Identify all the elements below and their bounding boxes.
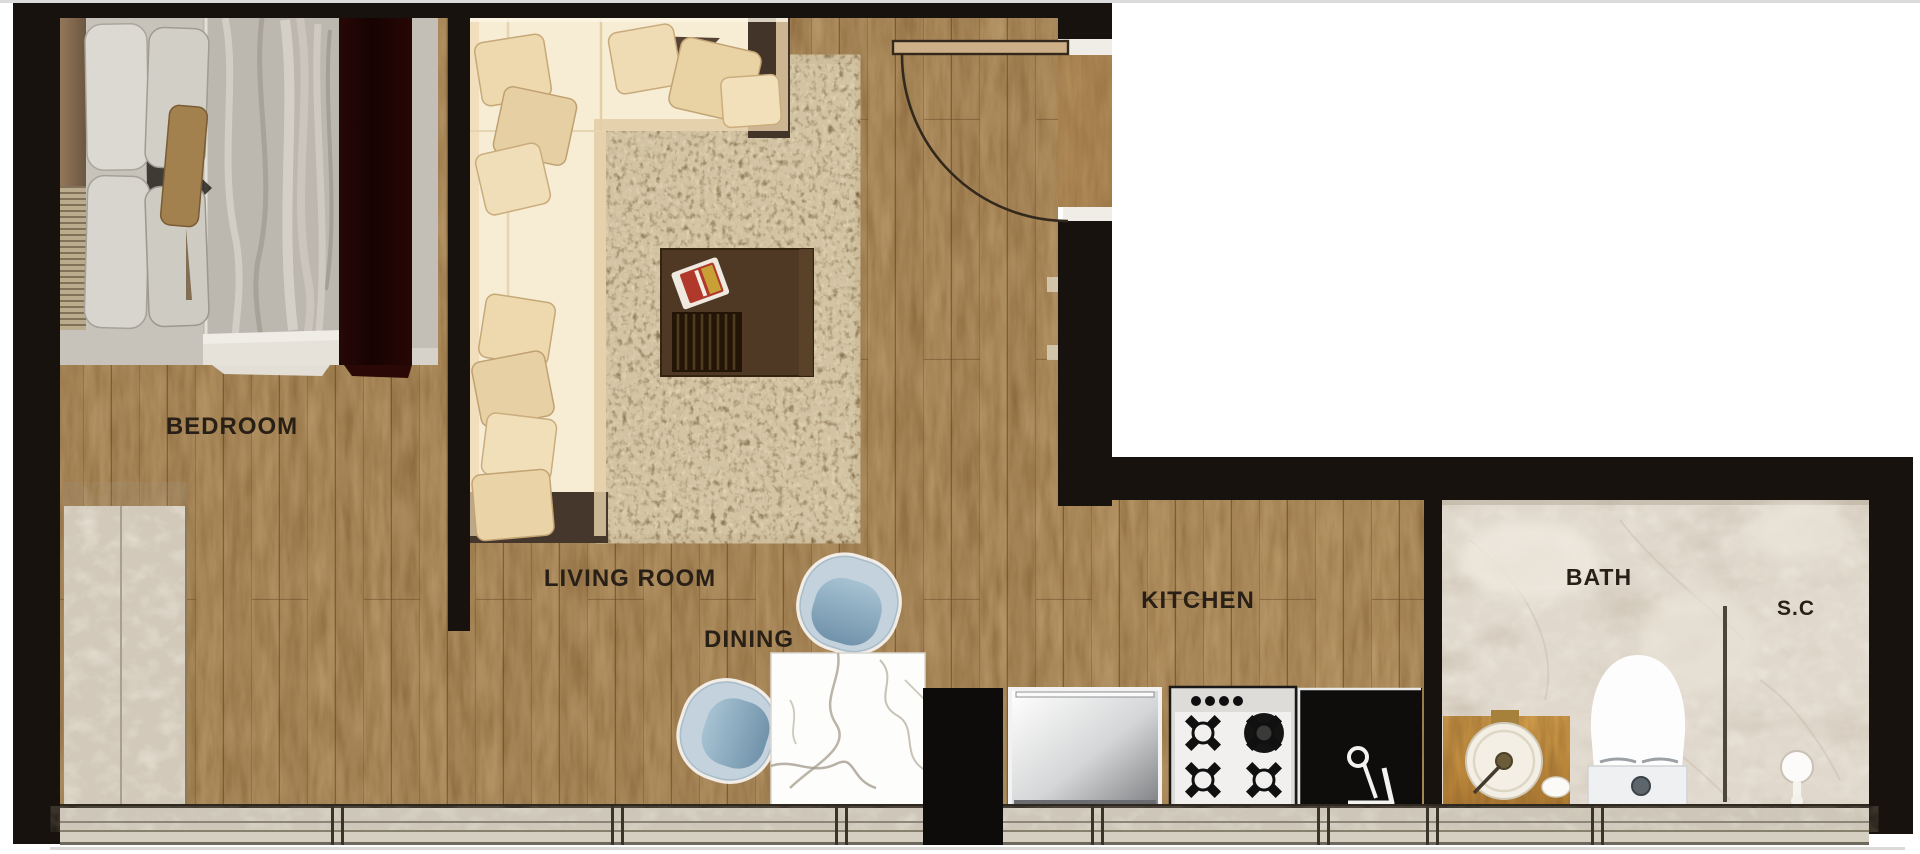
svg-text:BATH: BATH [1566,564,1632,590]
svg-text:S.C: S.C [1777,597,1815,620]
svg-text:DINING: DINING [704,626,794,653]
svg-text:BEDROOM: BEDROOM [166,413,298,440]
svg-text:LIVING ROOM: LIVING ROOM [544,565,716,592]
svg-text:KITCHEN: KITCHEN [1141,587,1255,614]
